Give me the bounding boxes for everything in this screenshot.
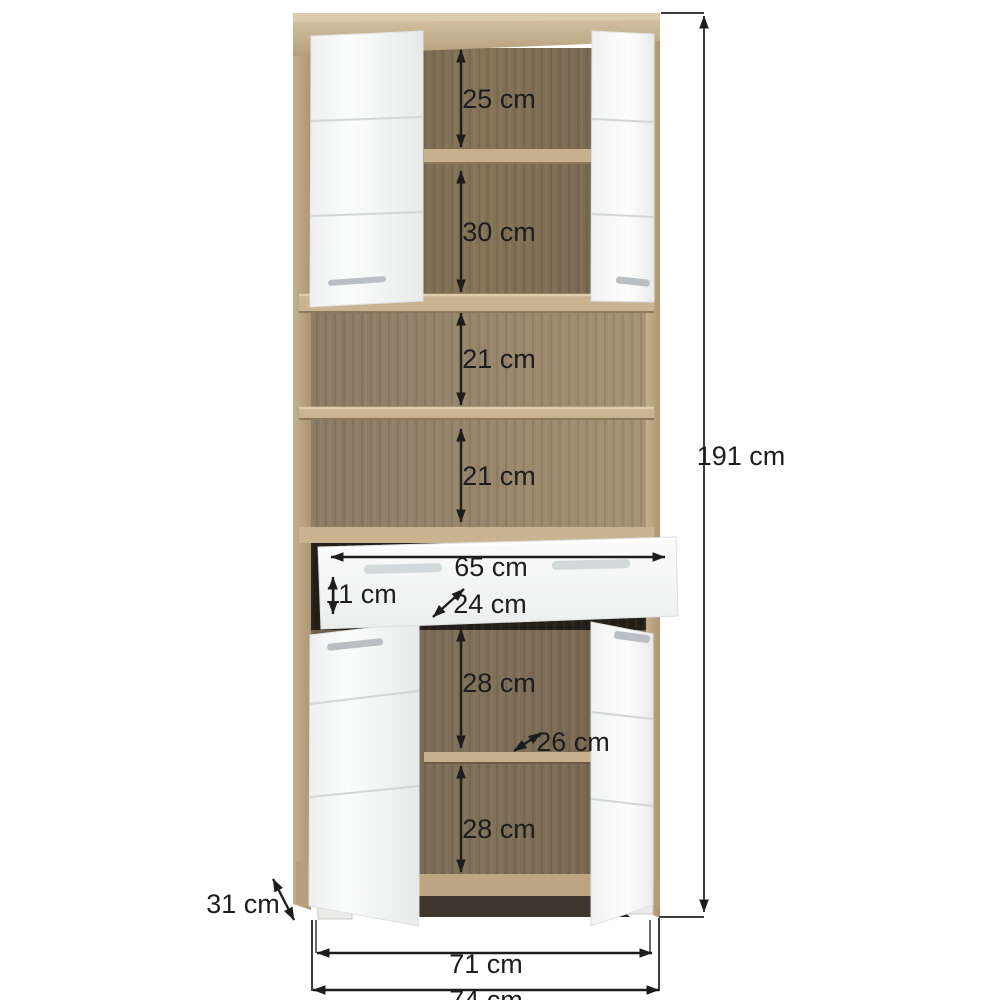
dimension-label-21b: 21 cm [462,461,536,491]
door-bottom-left [309,622,419,926]
dimension-label-71: 71 cm [449,949,523,979]
cabinet-dimension-diagram: 25 cm 30 cm 21 cm 21 cm 65 cm 11 cm 24 c… [0,0,1000,1000]
door-top-right [591,31,654,302]
diagram-canvas: 25 cm 30 cm 21 cm 21 cm 65 cm 11 cm 24 c… [0,0,1000,1000]
shelf-top-cabinet [424,149,591,163]
dimension-label-30: 30 cm [462,217,536,247]
door-top-left [310,31,423,307]
dimension-label-21a: 21 cm [462,344,536,374]
dimension-label-26: 26 cm [536,727,610,757]
dimension-label-28a: 28 cm [462,668,536,698]
dimension-label-11: 11 cm [325,579,397,609]
dimension-label-28b: 28 cm [462,814,536,844]
dimension-label-191: 191 cm [697,441,786,471]
dimension-label-74: 74 cm [449,985,523,1000]
dimension-label-31: 31 cm [206,889,280,919]
dimension-label-24: 24 cm [453,589,527,619]
dimension-label-25: 25 cm [462,84,536,114]
left-side-panel [293,48,311,910]
door-bottom-right [591,622,653,926]
dimension-label-65: 65 cm [454,552,528,582]
